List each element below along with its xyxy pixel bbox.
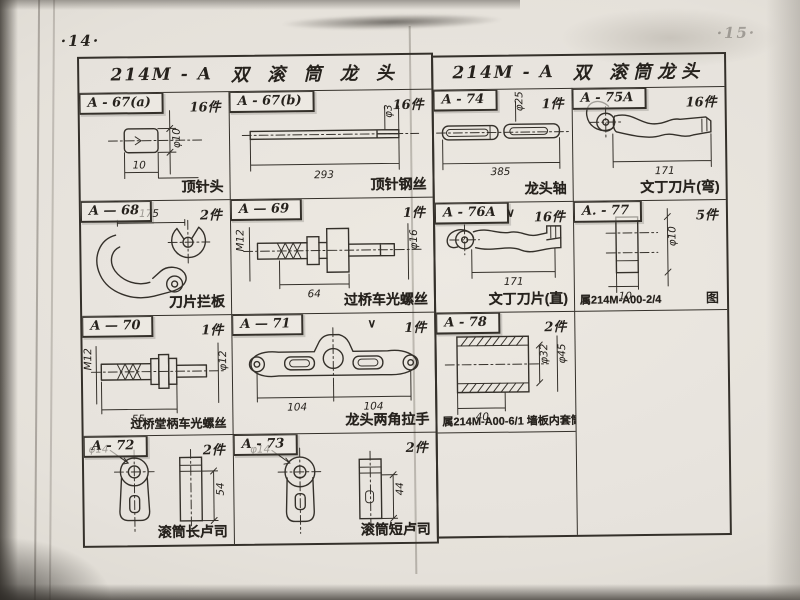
- dim-label: M12: [82, 348, 94, 370]
- sheet-right-title: 214M - A 双 滚筒龙头: [433, 54, 724, 90]
- part-number-tag: A - 75A: [571, 87, 646, 110]
- part-quantity: 1件: [541, 93, 563, 112]
- part-caption: 顶针头: [181, 176, 223, 197]
- part-caption: 属214M-A00-6/1 墙板内套筒: [442, 412, 575, 430]
- part-cell-a71: A — 71 1件 ∨ 104 104 龙头两角拉手: [231, 312, 435, 434]
- dim-label: 44: [394, 482, 406, 495]
- photo-corner-shadow: [0, 510, 160, 600]
- surface-finish-mark: ∨: [506, 206, 515, 220]
- part-quantity: 16件: [685, 91, 716, 110]
- part-caption: 滚筒长卢司: [158, 521, 228, 542]
- part-number-tag: A - 74: [433, 89, 497, 112]
- dim-label: φ10: [666, 226, 678, 247]
- part-caption: 顶针钢丝: [370, 174, 426, 195]
- part-quantity: 2件: [200, 204, 222, 223]
- scanned-photo: ·14· ·15· 214M - A 双 滚 筒 龙 头 A - 67(a) 1…: [0, 0, 800, 600]
- part-cell-a67b: A - 67(b) 16件 φ3 293 顶针钢丝: [228, 89, 432, 199]
- surface-finish-mark: ∨: [367, 316, 376, 330]
- part-number-tag: A - 67(b): [228, 90, 314, 113]
- part-cell-a69: A — 69 1件 M12 φ16 64 过桥车光螺: [230, 197, 434, 314]
- dim-label: φ16: [408, 229, 420, 250]
- title-name: 双 滚 筒 龙 头: [231, 59, 400, 87]
- title-name: 双 滚筒龙头: [573, 57, 706, 85]
- part-caption: 刀片拦板: [169, 291, 225, 312]
- part-caption: 文丁刀片(弯): [640, 176, 720, 197]
- empty-cell: [574, 309, 730, 535]
- part-number-tag: A. - 77: [573, 200, 642, 223]
- part-number-tag: A - 76A: [435, 202, 509, 225]
- dim-label: 385: [490, 166, 510, 178]
- part-cell-a70: A — 70 1件 M12 φ12 55 过桥堂柄车: [82, 314, 232, 436]
- dim-label: 104: [287, 401, 307, 413]
- part-number-tag: A — 71: [231, 313, 303, 336]
- part-number-tag: A - 67(a): [79, 92, 164, 115]
- part-cell-a75a: A - 75A 16件 171 文丁刀片(弯): [571, 86, 725, 201]
- part-quantity: 1件: [403, 202, 425, 221]
- dim-label: M12: [234, 229, 246, 251]
- part-quantity: 5件: [696, 204, 718, 223]
- dim-label: 64: [308, 288, 321, 300]
- part-quantity: 2件: [544, 316, 566, 335]
- part-number-tag: A — 69: [230, 198, 302, 221]
- part-quantity: 1件: [404, 317, 426, 336]
- part-cell-a68: A — 68 2件 175 刀片拦板: [81, 199, 231, 316]
- part-number-tag: A - 78: [436, 312, 500, 335]
- part-quantity: 16件: [189, 96, 220, 115]
- part-cell-a73: A - 73 2件 φ14 44 滚筒短卢司: [233, 432, 437, 544]
- dim-label: 10: [132, 159, 146, 171]
- part-number-tag: A — 68: [81, 200, 152, 223]
- part-number-tag: A - 72: [84, 435, 148, 458]
- part-caption: 过桥堂柄车光螺丝: [130, 414, 226, 432]
- part-caption-note: 图: [706, 287, 719, 306]
- part-caption: 龙头两角拉手: [345, 409, 429, 430]
- title-code: 214M - A: [452, 62, 555, 83]
- part-quantity: 2件: [406, 437, 428, 456]
- dim-label: 171: [655, 165, 675, 177]
- dim-label: φ45: [556, 343, 568, 364]
- part-number-tag: A — 70: [82, 315, 153, 338]
- dim-label: 171: [504, 276, 524, 288]
- sheet-left: 214M - A 双 滚 筒 龙 头 A - 67(a) 16件 φ10 10 …: [77, 53, 439, 548]
- dim-label: φ25: [513, 91, 525, 112]
- sheet-right: 214M - A 双 滚筒龙头 A - 74 1件 φ25 385: [431, 52, 732, 539]
- part-number-tag: A - 73: [233, 433, 298, 456]
- dim-label: φ12: [217, 351, 229, 371]
- part-quantity: 16件: [392, 94, 423, 113]
- part-cell-a76a: A - 76A 16件 ∨ 171 文丁刀片(直): [435, 201, 574, 313]
- part-caption: 滚筒短卢司: [361, 519, 431, 540]
- part-cell-a74: A - 74 1件 φ25 385 龙头轴: [433, 88, 572, 203]
- page-number-right: ·15·: [717, 24, 757, 42]
- photo-edge-top: [0, 0, 520, 10]
- dim-label: φ32: [538, 344, 550, 364]
- part-caption: 龙头轴: [525, 178, 567, 199]
- part-caption: 属214M-A00-2/4: [580, 291, 662, 308]
- part-quantity: 2件: [203, 439, 225, 458]
- dim-label: φ10: [171, 128, 183, 149]
- photo-edge-right: [766, 0, 800, 600]
- dim-label: 54: [215, 482, 227, 495]
- dim-label: 293: [314, 169, 334, 181]
- page-number-left: ·14·: [61, 32, 101, 50]
- empty-cell: [438, 431, 577, 537]
- part-caption: 过桥车光螺丝: [344, 289, 428, 310]
- part-caption: 文丁刀片(直): [489, 288, 569, 309]
- title-code: 214M - A: [110, 64, 213, 85]
- part-cell-a67a: A - 67(a) 16件 φ10 10 顶针头: [79, 91, 229, 201]
- part-quantity: 1件: [201, 319, 223, 338]
- sheet-left-title: 214M - A 双 滚 筒 龙 头: [79, 55, 431, 93]
- part-cell-a77: A. - 77 5件 φ10 10 属214M-A00-2/4 图: [573, 199, 727, 311]
- part-cell-a78: A - 78 2件 φ32 φ45 40 属214M-A00-6/1 墙板内套筒: [436, 311, 575, 433]
- part-quantity: 16件: [534, 206, 565, 225]
